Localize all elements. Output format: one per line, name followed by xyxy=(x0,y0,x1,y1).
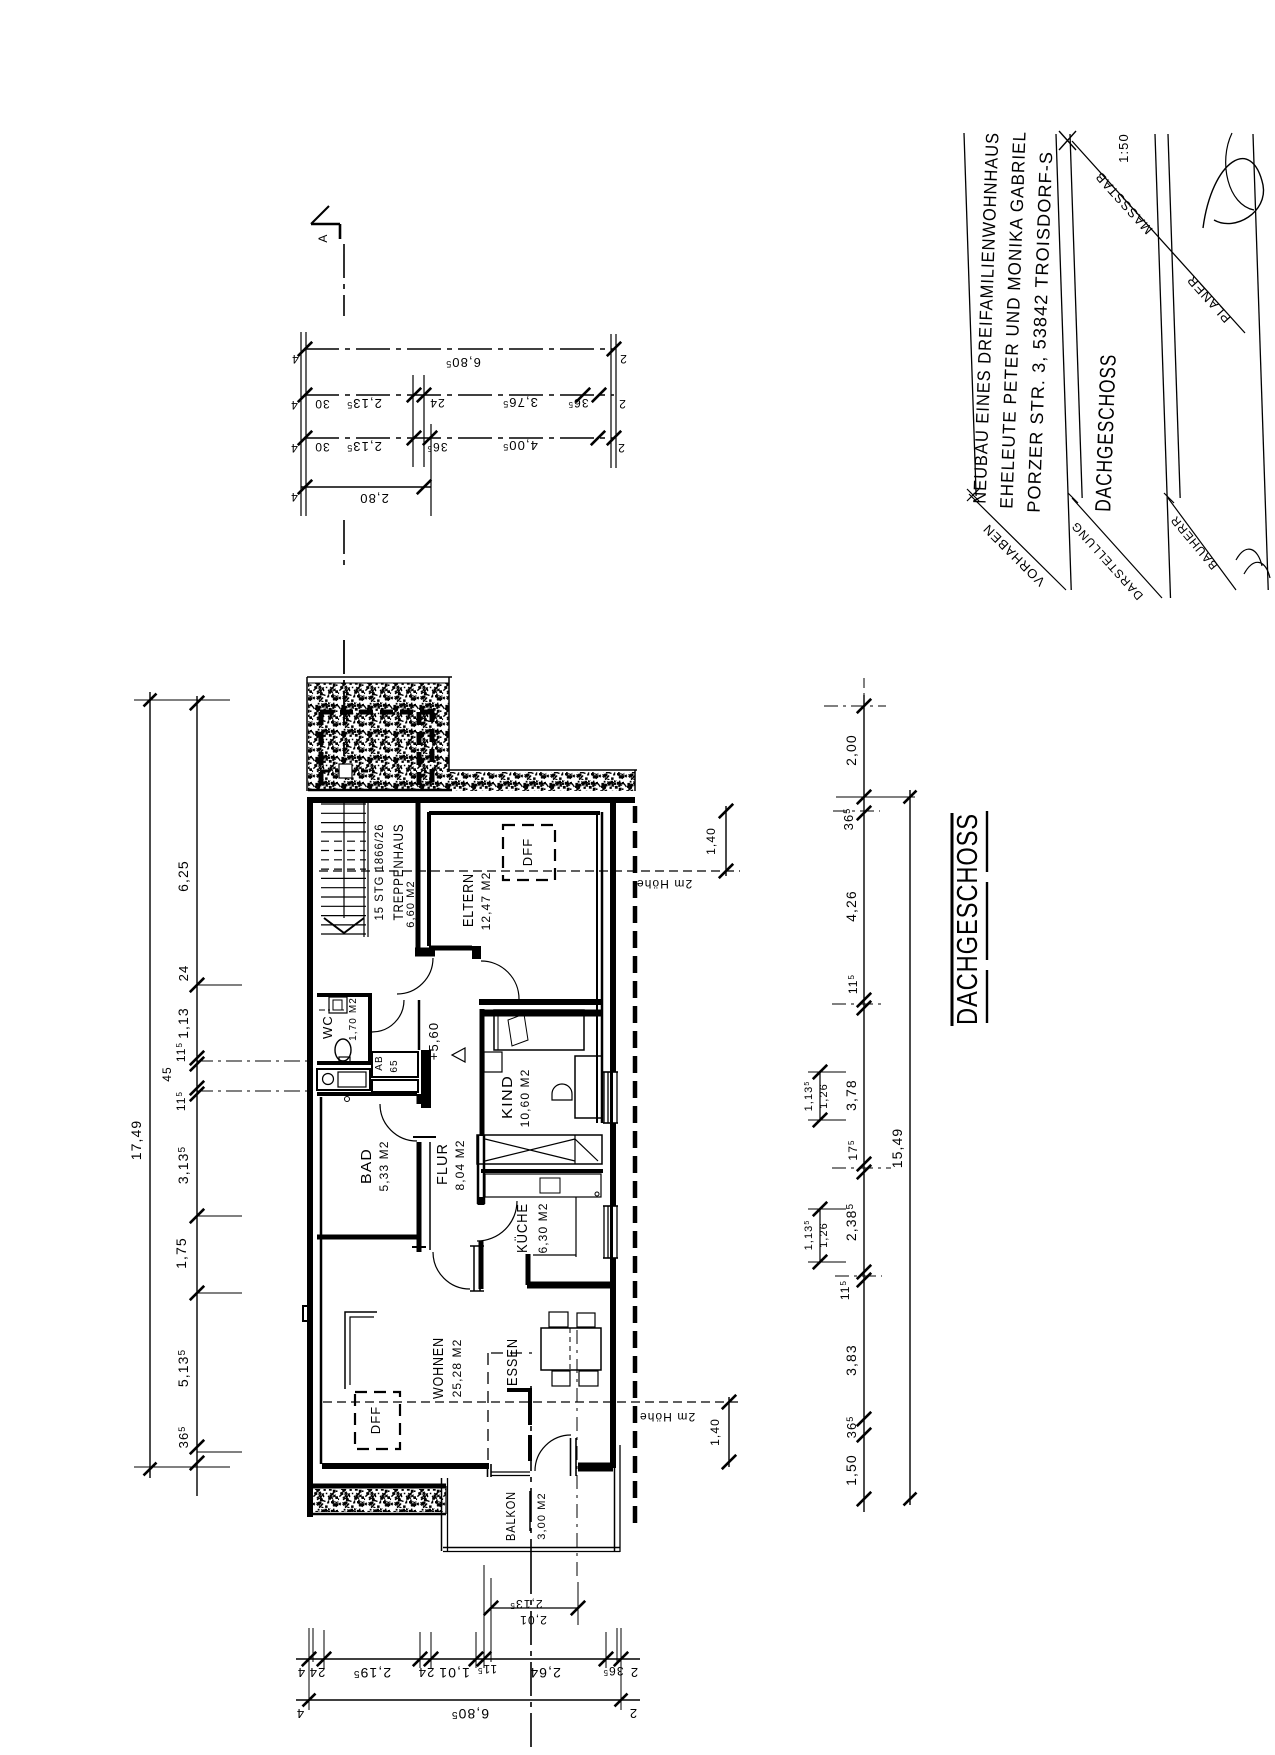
svg-text:KIND: KIND xyxy=(499,1075,516,1119)
svg-text:1,40: 1,40 xyxy=(708,1418,722,1446)
svg-text:15 STG 1866/26: 15 STG 1866/26 xyxy=(372,824,386,921)
svg-text:6,30 M2: 6,30 M2 xyxy=(536,1202,550,1253)
svg-text:2,01: 2,01 xyxy=(519,1613,547,1627)
svg-text:4: 4 xyxy=(290,490,298,504)
svg-text:1,50: 1,50 xyxy=(843,1454,859,1486)
svg-text:2: 2 xyxy=(619,352,627,366)
svg-text:ESSEN: ESSEN xyxy=(504,1338,521,1386)
svg-text:WOHNEN: WOHNEN xyxy=(430,1337,447,1399)
svg-text:BALKON: BALKON xyxy=(503,1491,518,1541)
svg-text:30: 30 xyxy=(314,397,330,411)
svg-text:5,33 M2: 5,33 M2 xyxy=(377,1140,391,1191)
svg-text:2,00: 2,00 xyxy=(843,734,859,766)
svg-text:AB: AB xyxy=(374,1055,385,1071)
svg-text:4: 4 xyxy=(291,352,299,366)
svg-text:1,40: 1,40 xyxy=(704,827,718,855)
svg-text:1,13: 1,13 xyxy=(175,1007,191,1039)
svg-text:2,80: 2,80 xyxy=(359,491,389,506)
svg-text:A: A xyxy=(316,233,330,242)
svg-text:DACHGESCHOSS: DACHGESCHOSS xyxy=(952,813,984,1025)
svg-text:4: 4 xyxy=(290,441,298,455)
svg-text:4: 4 xyxy=(297,1665,305,1680)
svg-text:+5,60: +5,60 xyxy=(426,1022,441,1060)
svg-text:KÜCHE: KÜCHE xyxy=(513,1203,531,1253)
svg-text:2,64: 2,64 xyxy=(529,1665,561,1681)
svg-text:8,04 M2: 8,04 M2 xyxy=(453,1139,467,1190)
svg-text:45: 45 xyxy=(160,1066,174,1082)
svg-text:BAD: BAD xyxy=(358,1148,375,1184)
svg-text:2: 2 xyxy=(630,1665,638,1680)
svg-text:24: 24 xyxy=(176,965,191,982)
svg-text:6,25: 6,25 xyxy=(175,860,191,892)
svg-text:3,00 M2: 3,00 M2 xyxy=(536,1492,548,1539)
svg-text:1,26: 1,26 xyxy=(818,1222,830,1248)
svg-text:65: 65 xyxy=(389,1059,400,1072)
svg-text:TREPPENHAUS: TREPPENHAUS xyxy=(390,824,406,921)
svg-text:24: 24 xyxy=(429,396,445,410)
svg-text:17,49: 17,49 xyxy=(128,1120,144,1161)
svg-text:10,60 M2: 10,60 M2 xyxy=(518,1069,532,1128)
svg-text:15,49: 15,49 xyxy=(889,1128,905,1169)
svg-text:2m Höhe: 2m Höhe xyxy=(639,1410,695,1424)
svg-text:WC: WC xyxy=(320,1015,335,1039)
svg-text:1,01: 1,01 xyxy=(438,1665,470,1681)
svg-text:4,26: 4,26 xyxy=(843,890,859,922)
svg-text:30: 30 xyxy=(314,440,330,454)
svg-text:FLUR: FLUR xyxy=(434,1143,451,1185)
svg-text:1,75: 1,75 xyxy=(173,1237,189,1269)
svg-text:1:50: 1:50 xyxy=(1116,133,1131,163)
svg-text:2: 2 xyxy=(617,441,625,455)
svg-text:DFF: DFF xyxy=(368,1406,383,1435)
svg-text:1,70 M2: 1,70 M2 xyxy=(348,997,359,1041)
svg-text:2: 2 xyxy=(629,1706,637,1721)
svg-text:ELTERN: ELTERN xyxy=(460,873,477,927)
svg-text:6,60 M2: 6,60 M2 xyxy=(405,880,417,927)
svg-text:4: 4 xyxy=(296,1706,304,1721)
svg-text:3,78: 3,78 xyxy=(843,1079,859,1111)
svg-text:2m Höhe: 2m Höhe xyxy=(636,877,692,891)
svg-text:2: 2 xyxy=(618,397,626,411)
svg-text:4: 4 xyxy=(290,398,298,412)
svg-text:25,28 M2: 25,28 M2 xyxy=(450,1339,464,1398)
svg-text:24: 24 xyxy=(309,1665,326,1680)
svg-text:3,83: 3,83 xyxy=(843,1344,859,1376)
svg-text:1,26: 1,26 xyxy=(818,1083,830,1109)
svg-text:DFF: DFF xyxy=(520,838,535,867)
svg-text:12,47 M2: 12,47 M2 xyxy=(479,872,493,931)
